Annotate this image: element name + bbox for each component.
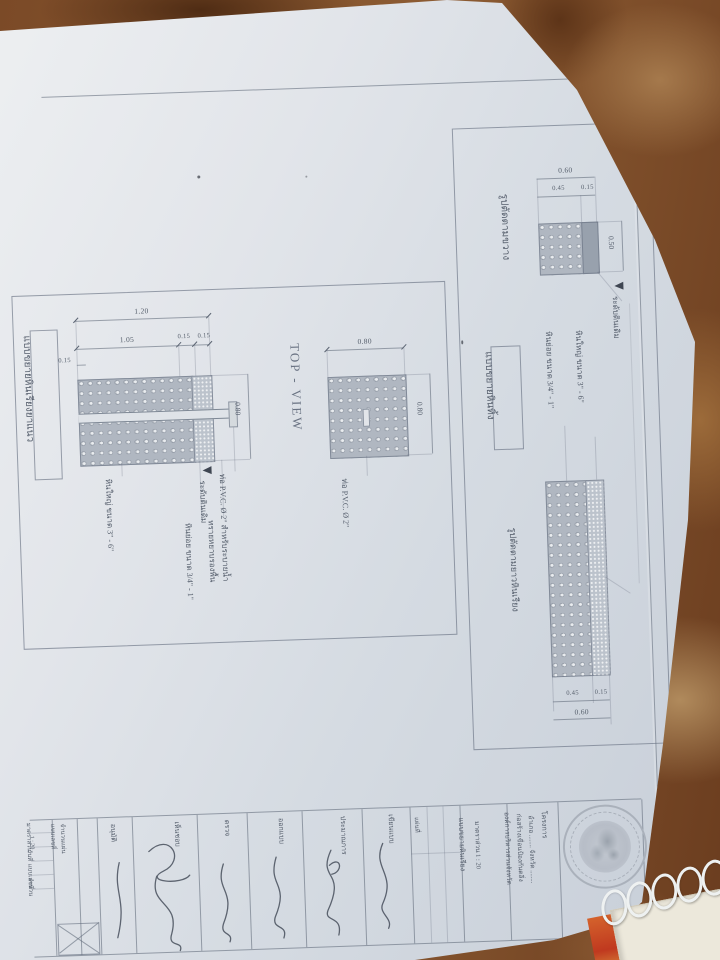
note-large-stone: หินใหญ่ ขนาด 3" - 6" (572, 330, 588, 403)
section-gray-strip (581, 222, 600, 275)
ext-line (178, 345, 180, 377)
dim-line (77, 364, 86, 365)
note-small-stone: หินย่อย ขนาด 3/4" - 1" (181, 523, 197, 600)
signature-endorsed (149, 843, 193, 951)
dim-line (537, 177, 595, 180)
bar-dim-total: 0.60 (553, 706, 610, 717)
ext-line (404, 374, 429, 376)
ext-line (208, 316, 211, 376)
section-stone-square (538, 222, 585, 276)
speck (305, 176, 307, 178)
ext-line (403, 347, 405, 374)
speck (461, 340, 463, 344)
bar-dim-seg: 0.15 (592, 688, 609, 696)
note-ground-level: ระดับดินเดิม (196, 480, 210, 523)
dim-total: 1.20 (75, 304, 208, 318)
dim-main: 1.05 (76, 333, 178, 346)
dim-seg: 0.15 (580, 184, 595, 192)
dim-edge: 0.15 (55, 357, 75, 365)
bar-dim-main: 0.45 (552, 689, 592, 697)
note-large-stone: หินใหญ่ ขนาด 3" - 6" (102, 479, 118, 552)
ext-line (407, 453, 432, 455)
note-small-stone: หินย่อย ขนาด 3/4" - 1" (542, 331, 558, 408)
dim-total: 0.60 (536, 165, 594, 176)
ext-line (580, 195, 582, 222)
ext-line (210, 374, 247, 376)
pipe-hole-slot (363, 409, 371, 427)
dim-line (621, 221, 624, 271)
signature-designed (272, 857, 284, 938)
detail-title: แบบขยายหินทิ้ง (481, 351, 498, 420)
dim-line (247, 374, 251, 459)
leader-line (233, 427, 236, 471)
leader-line (366, 456, 368, 476)
ext-line (194, 345, 196, 377)
spiral-coil (700, 859, 720, 897)
ext-line (596, 221, 621, 223)
left-detail-panel: แบบขยายหินเรียงยาแนว 1.20 1.05 0.15 0.15… (11, 281, 457, 650)
dim-line (553, 699, 610, 702)
dim-main: 0.45 (537, 184, 580, 192)
dim-height: 0.80 (233, 402, 242, 415)
cross-section-title: รูปตัดตามขวาง (496, 194, 513, 261)
ext-line (598, 271, 623, 273)
level-marker-icon (614, 282, 623, 290)
photo-of-drawing-sheet: แบบขยายหินเรียงยาแนว 1.20 1.05 0.15 0.15… (0, 0, 720, 960)
sheet-frame-top (41, 76, 646, 98)
ext-line (326, 350, 328, 377)
dim-line (537, 195, 595, 198)
signatures (30, 799, 646, 958)
signature-drawn (379, 843, 389, 928)
signature-estimated (325, 850, 342, 935)
top-view-dim-w: 0.80 (326, 335, 403, 347)
top-view-note: ท่อ P.V.C. Ø 2" (338, 478, 353, 527)
ext-line (75, 321, 78, 381)
long-section-title: รูปตัดตามยาวหินเรียง (506, 527, 523, 612)
note-pvc-pipe: ท่อ P.V.C. Ø 2" สำหรับระบายน้ำ (216, 474, 233, 582)
dim-line (553, 717, 610, 720)
signature-checked (221, 864, 231, 942)
title-block: มาตราส่วน 1 : 20 วันที่ แบบเลขที่ จำนวน … (30, 798, 646, 958)
top-view-label: TOP - VIEW (286, 343, 305, 432)
signature-approved (115, 863, 122, 938)
dim-seg-b: 0.15 (193, 332, 215, 340)
speck (197, 175, 200, 178)
dim-height: 0.50 (607, 236, 616, 249)
level-marker-icon (202, 466, 211, 474)
leader-line (629, 303, 640, 583)
dim-line (429, 373, 433, 453)
ext-line (595, 177, 598, 222)
right-section-panel: รูปตัดตามขวาง 0.60 0.45 0.15 0.50 ระดับด… (452, 122, 672, 751)
note-ground-level: ระดับดินเดิม (609, 296, 623, 339)
leader-line (564, 426, 567, 481)
dim-line (326, 347, 403, 351)
top-view-dim-h: 0.80 (415, 402, 424, 415)
leader-diagonal (605, 576, 631, 593)
leader-line (595, 437, 598, 480)
ext-line (213, 459, 250, 461)
